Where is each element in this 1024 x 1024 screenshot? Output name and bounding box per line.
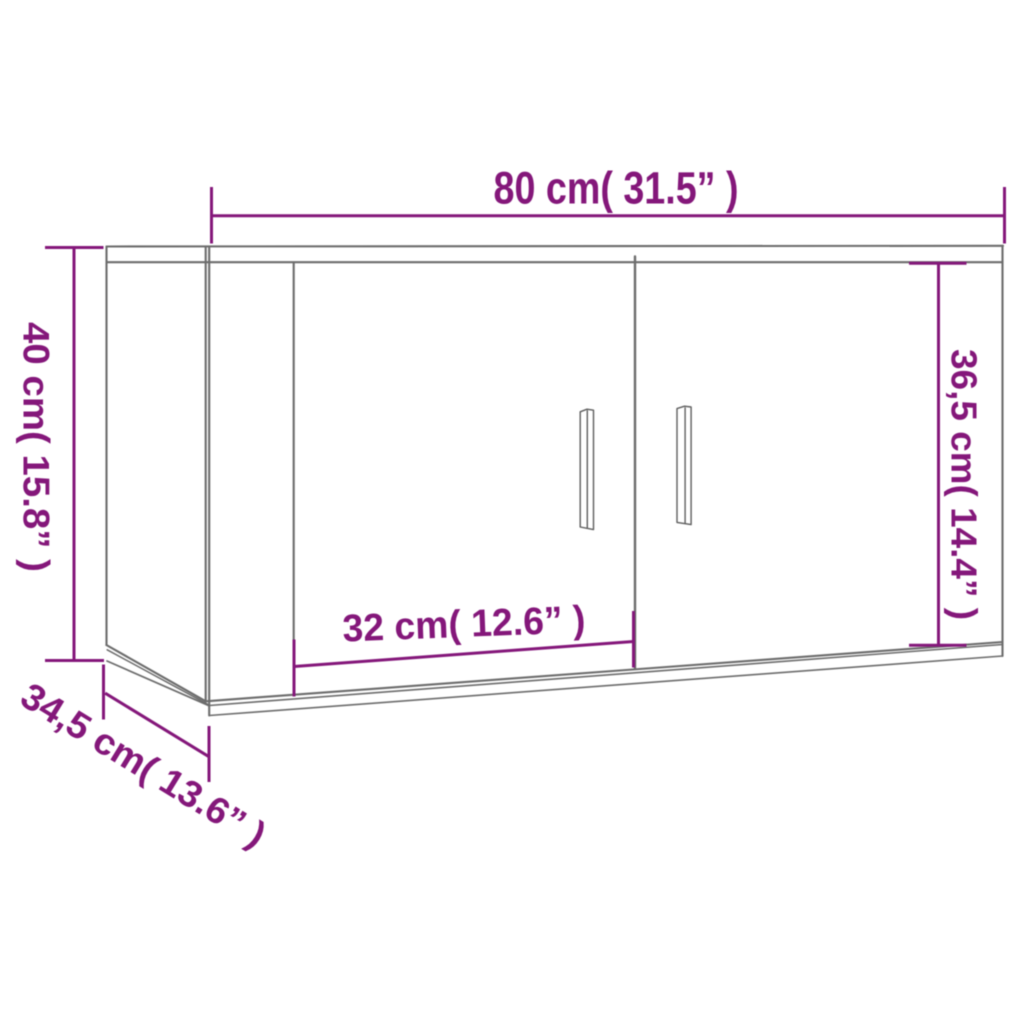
svg-text:80 cm( 31.5” ): 80 cm( 31.5” ) xyxy=(494,162,739,213)
svg-text:36,5 cm( 14.4” ): 36,5 cm( 14.4” ) xyxy=(944,349,985,620)
svg-text:40 cm( 15.8” ): 40 cm( 15.8” ) xyxy=(15,322,56,572)
